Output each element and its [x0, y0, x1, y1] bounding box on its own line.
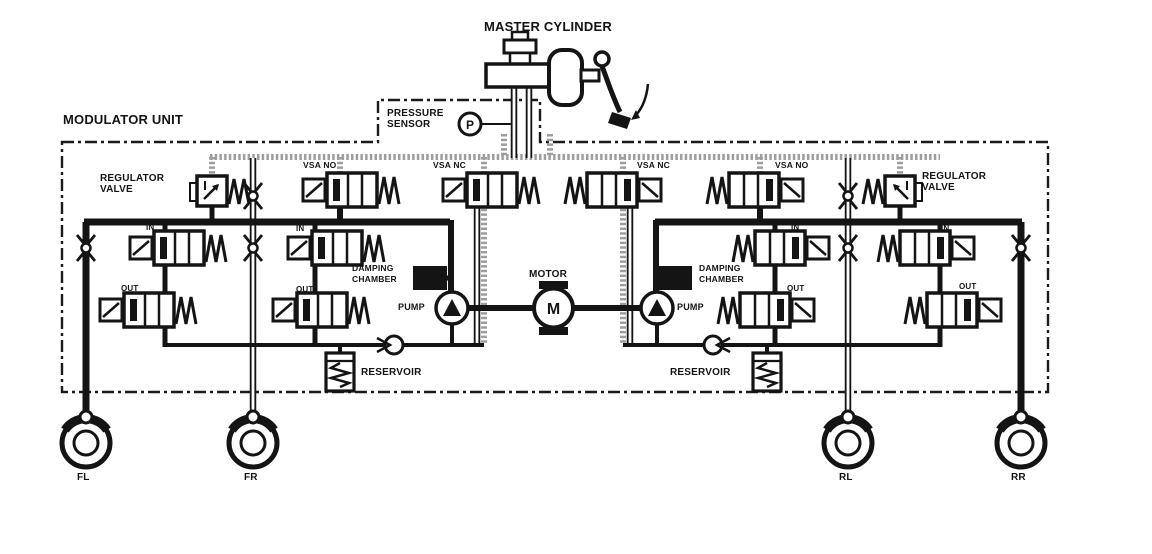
- damping-chamber-left-label-line2: CHAMBER: [352, 275, 397, 284]
- regulator-valve-left-label-line1: REGULATOR: [100, 174, 164, 184]
- out-valve-left-2: [273, 293, 369, 327]
- wheel-label-fr: FR: [244, 473, 258, 483]
- pressure-sensor-symbol: P: [459, 113, 481, 135]
- out-valve-right-inner: [718, 293, 814, 327]
- pump-left-label: PUMP: [398, 303, 425, 312]
- schematic-canvas: M P: [0, 0, 1152, 554]
- damping-chamber-right-label-line2: CHAMBER: [699, 275, 744, 284]
- pump-left: [436, 292, 468, 324]
- damping-chamber-left: [413, 266, 447, 290]
- wheel-rear-left: [824, 411, 872, 467]
- master-cylinder-label: MASTER CYLINDER: [484, 20, 612, 33]
- reservoir-right-symbol: [753, 353, 781, 391]
- out-right-inner-label: OUT: [787, 285, 805, 293]
- vsa-no-valve-left: [303, 173, 399, 207]
- wheel-front-right: [229, 411, 277, 467]
- out-valve-left-1: [100, 293, 196, 327]
- out-left-1-label: OUT: [121, 285, 139, 293]
- reservoir-left-symbol: [326, 353, 354, 391]
- wheel-label-rr: RR: [1011, 473, 1026, 483]
- in-valve-left-2: [288, 231, 384, 265]
- pressure-sensor-label-line2: SENSOR: [387, 120, 430, 130]
- reservoir-left-label: RESERVOIR: [361, 368, 422, 378]
- vsa-no-valve-right: [707, 173, 803, 207]
- out-valve-right-outer: [905, 293, 1001, 327]
- damping-chamber-right: [658, 266, 692, 290]
- reservoir-right-label: RESERVOIR: [670, 368, 731, 378]
- vsa-no-right-label: VSA NO: [775, 161, 808, 170]
- regulator-valve-right: [863, 176, 922, 206]
- regulator-valve-right-label-line2: VALVE: [922, 183, 955, 193]
- pedal-arrow: [636, 84, 648, 115]
- wheel-label-rl: RL: [839, 473, 853, 483]
- pressure-sensor-letter: P: [466, 118, 474, 132]
- pump-right-label: PUMP: [677, 303, 704, 312]
- regulator-valve-right-label-line1: REGULATOR: [922, 172, 986, 182]
- vsa-no-left-label: VSA NO: [303, 161, 336, 170]
- in-right-inner-label: IN: [791, 224, 799, 232]
- brake-modulator-diagram: M P MASTER CYLINDER MODULATOR UNIT PRESS…: [0, 0, 1152, 554]
- in-valve-right-inner: [733, 231, 829, 265]
- motor-letter: M: [547, 301, 560, 318]
- modulator-unit-label: MODULATOR UNIT: [63, 113, 183, 126]
- damping-chamber-left-label-line1: DAMPING: [352, 264, 394, 273]
- in-valve-right-outer: [878, 231, 974, 265]
- regulator-valve-left-label-line2: VALVE: [100, 185, 133, 195]
- in-left-2-label: IN: [296, 225, 304, 233]
- vsa-nc-right-label: VSA NC: [637, 161, 670, 170]
- in-valve-left-1: [130, 231, 226, 265]
- out-left-2-label: OUT: [296, 286, 314, 294]
- damping-chamber-right-label-line1: DAMPING: [699, 264, 741, 273]
- master-cylinder-symbol: [486, 32, 648, 129]
- regulator-valve-left: [190, 176, 249, 206]
- motor-label: MOTOR: [529, 270, 567, 280]
- wheel-label-fl: FL: [77, 473, 90, 483]
- vsa-nc-valve-right: [565, 173, 661, 207]
- in-left-1-label: IN: [146, 224, 154, 232]
- pump-right: [641, 292, 673, 324]
- vsa-nc-left-label: VSA NC: [433, 161, 466, 170]
- wheel-rear-right: [997, 411, 1045, 467]
- pressure-sensor-label-line1: PRESSURE: [387, 109, 444, 119]
- in-right-outer-label: IN: [941, 225, 949, 233]
- wheel-front-left: [62, 411, 110, 467]
- motor-symbol: M: [534, 281, 573, 335]
- out-right-outer-label: OUT: [959, 283, 977, 291]
- vsa-nc-valve-left: [443, 173, 539, 207]
